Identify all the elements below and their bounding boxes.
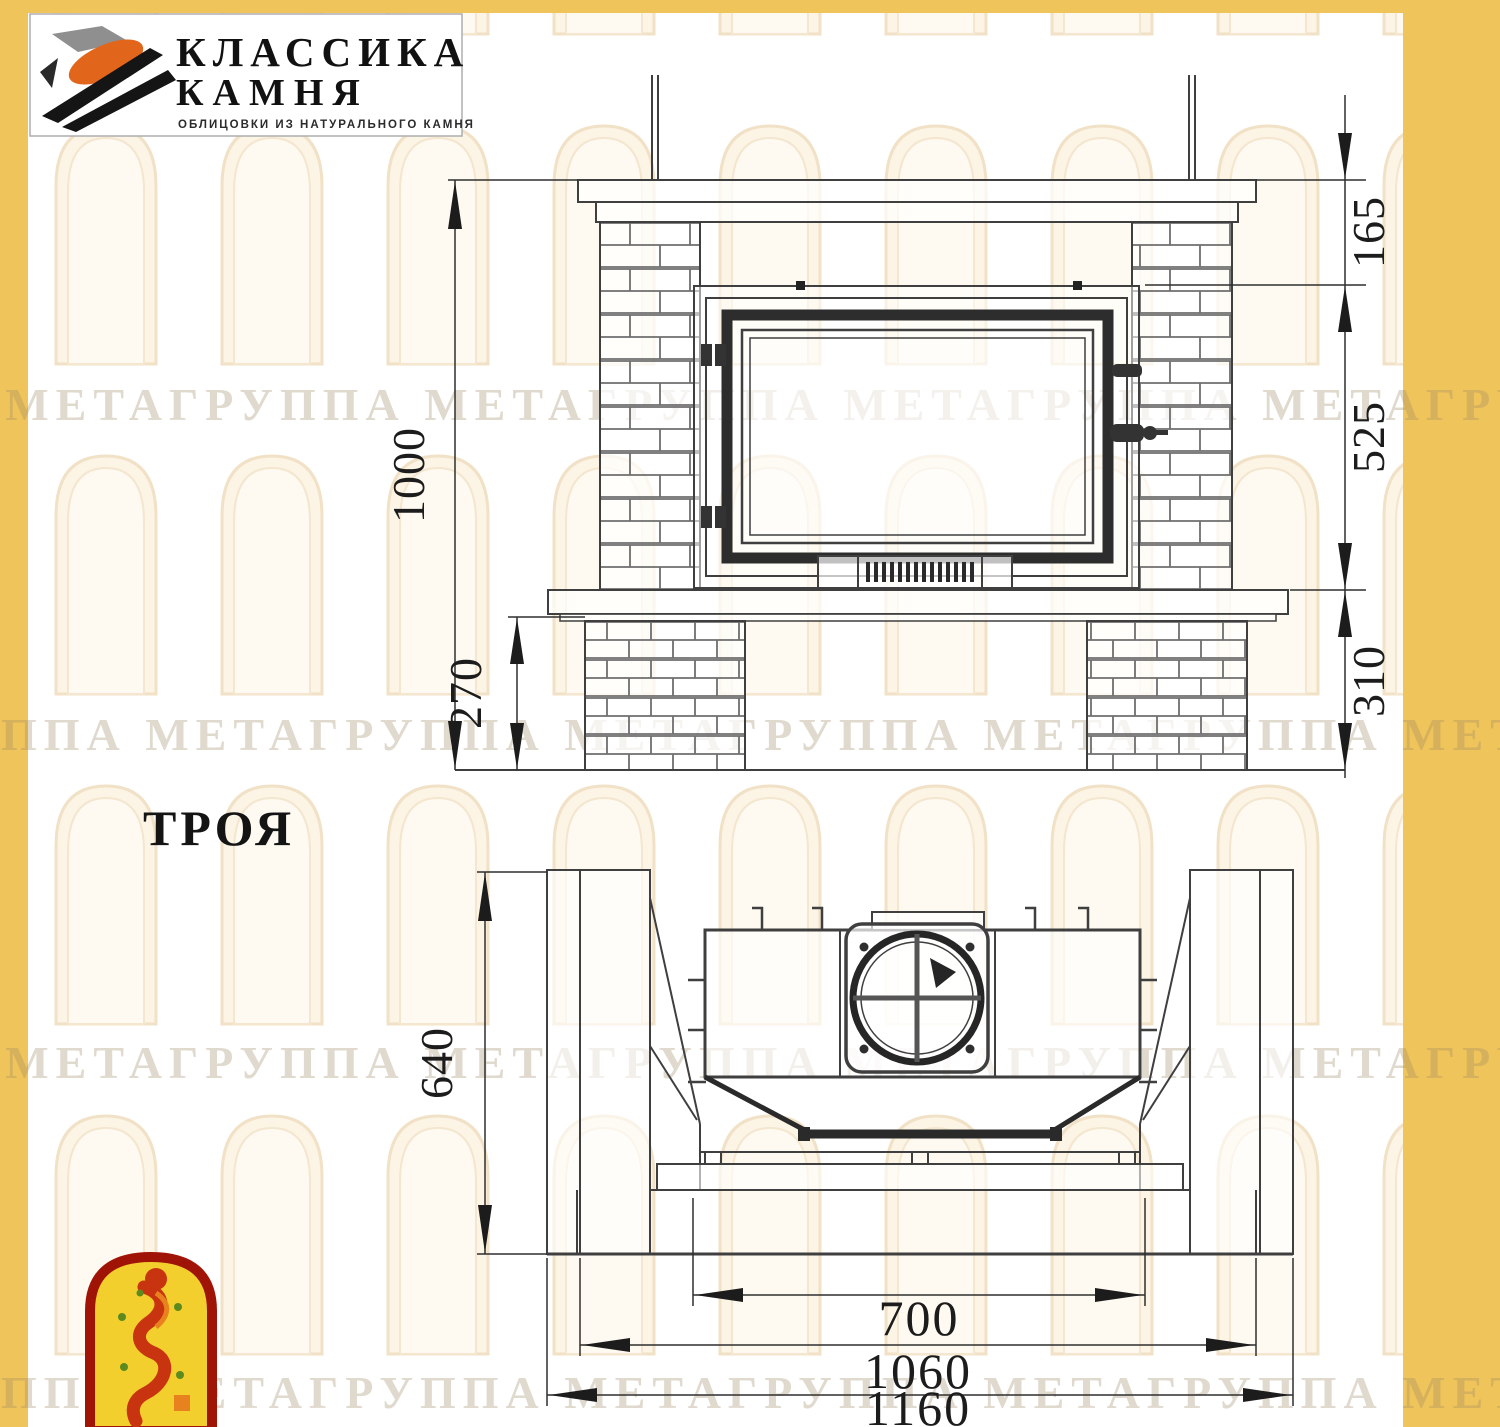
plan-right-wall (1190, 870, 1293, 1254)
frame-lug (1073, 281, 1082, 290)
dim-depth: 640 (411, 1027, 462, 1099)
hood-bar-end (1050, 1127, 1062, 1141)
technical-drawing-canvas: ГРУППА МЕТАГРУППА МЕТАГРУППА МЕТАГРУППА … (0, 0, 1500, 1427)
hearth-lip (560, 614, 1276, 621)
top-band (0, 0, 1500, 13)
watermark-row: ГРУППА МЕТАГРУППА МЕТАГРУППА МЕТАГРУППА … (0, 709, 1500, 760)
frame-lug (796, 281, 805, 290)
dim-top-to-insert: 165 (1343, 196, 1394, 268)
left-pedestal (585, 621, 745, 770)
brand-logo: КЛАССИКА КАМНЯ ОБЛИЦОВКИ ИЗ НАТУРАЛЬНОГО… (30, 14, 475, 136)
brand-name-line2: КАМНЯ (176, 72, 369, 114)
left-brick-column (600, 222, 700, 590)
front-fender (657, 1164, 1183, 1190)
model-name-label: ТРОЯ (143, 800, 295, 856)
mantel-shelf-lower (596, 202, 1238, 222)
dim-insert-height: 525 (1343, 401, 1394, 473)
brand-name-line1: КЛАССИКА (176, 29, 470, 75)
dim-opening-width: 700 (879, 1290, 960, 1346)
dim-overall-width: 1160 (865, 1380, 971, 1427)
hearth-shelf (548, 590, 1288, 614)
watermark-row: ГРУППА МЕТАГРУППА МЕТАГРУППА МЕТАГРУППА … (0, 1367, 1500, 1418)
plan-left-wall (547, 870, 650, 1254)
dim-pedestal-height: 270 (440, 657, 491, 729)
brand-tagline: ОБЛИЦОВКИ ИЗ НАТУРАЛЬНОГО КАМНЯ (178, 119, 475, 131)
hood-bar-end (798, 1127, 810, 1141)
right-pedestal (1087, 621, 1247, 770)
right-brick-column (1132, 222, 1232, 590)
drawing-sheet: ГРУППА МЕТАГРУППА МЕТАГРУППА МЕТАГРУППА … (0, 0, 1500, 1427)
door-glass (750, 338, 1085, 535)
meta-emblem (90, 1257, 212, 1427)
dim-total-height: 1000 (383, 427, 434, 523)
dim-hearth-to-floor: 310 (1343, 645, 1394, 717)
mantel-shelf-top (578, 180, 1256, 202)
